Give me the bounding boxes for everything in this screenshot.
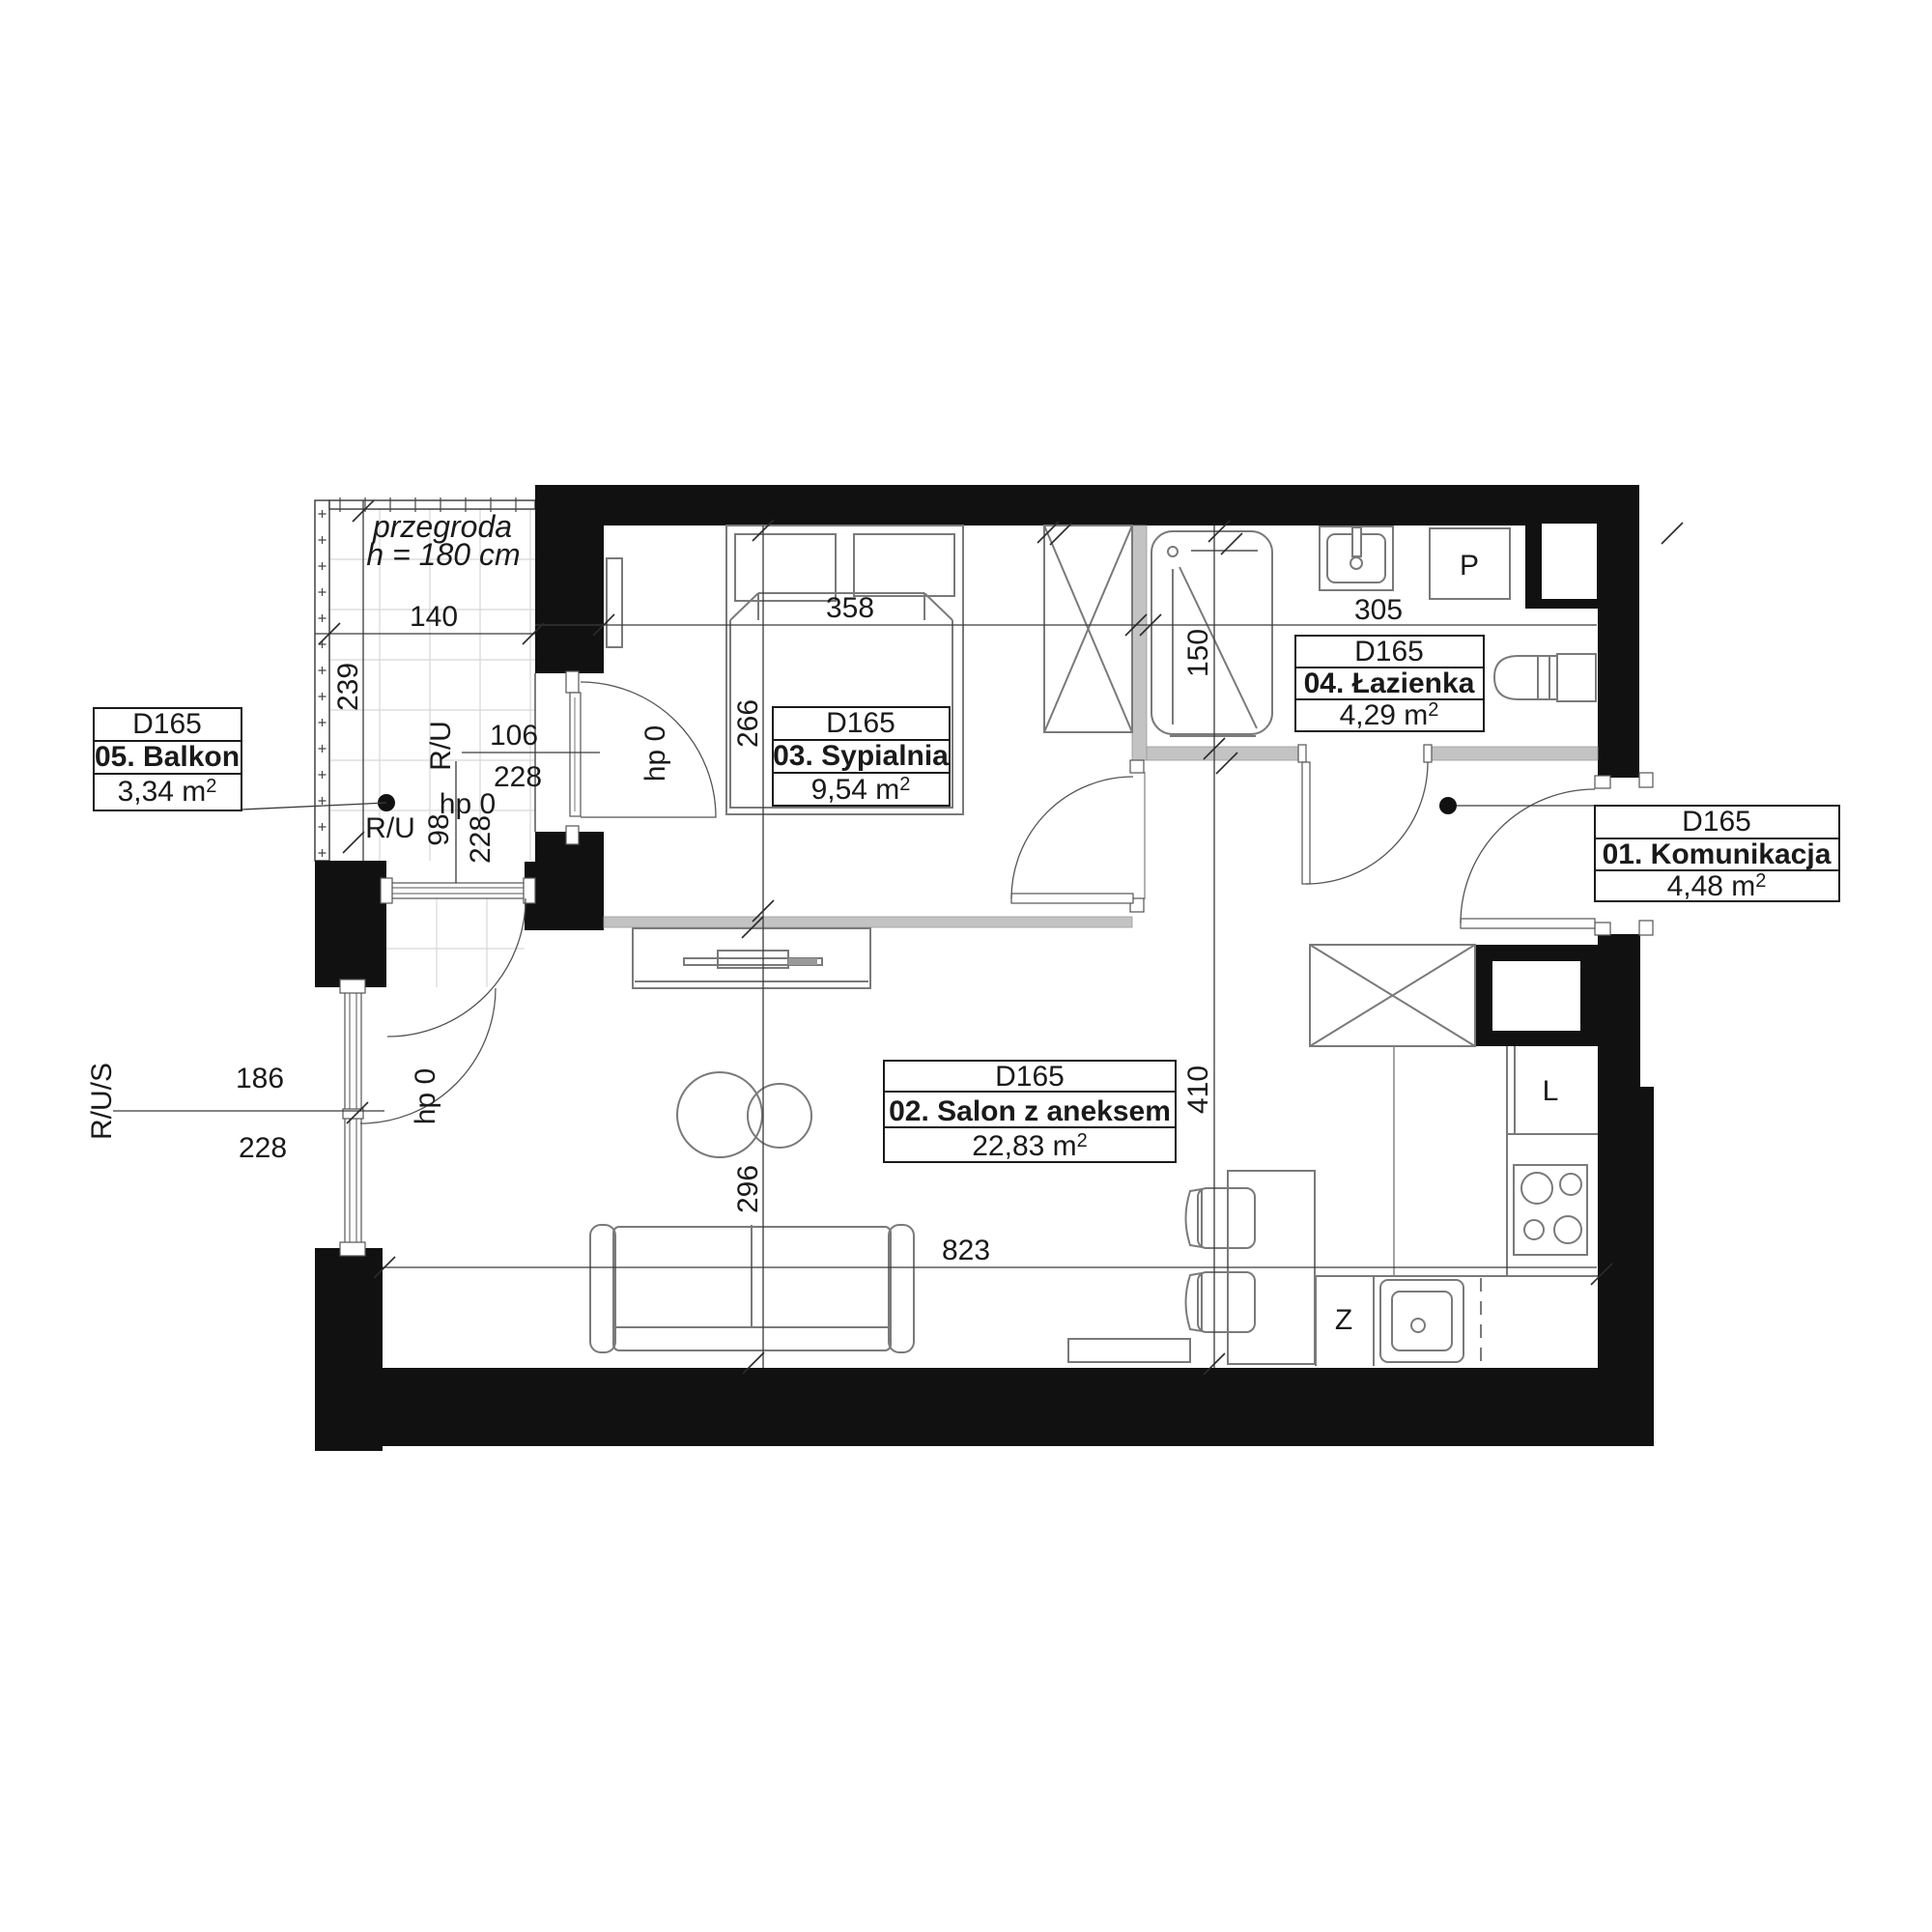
svg-text:228: 228 (494, 761, 542, 793)
svg-text:410: 410 (1182, 1065, 1214, 1114)
svg-text:03. Sypialnia: 03. Sypialnia (773, 740, 949, 772)
svg-text:04. Łazienka: 04. Łazienka (1304, 668, 1475, 699)
svg-text:305: 305 (1354, 594, 1403, 626)
svg-text:Z: Z (1335, 1304, 1352, 1336)
svg-text:hp 0: hp 0 (440, 788, 496, 820)
svg-text:D165: D165 (995, 1061, 1065, 1093)
svg-text:02. Salon z aneksem: 02. Salon z aneksem (889, 1095, 1171, 1127)
svg-text:140: 140 (410, 601, 458, 633)
svg-text:hp 0: hp 0 (639, 725, 671, 781)
svg-text:h = 180 cm: h = 180 cm (366, 537, 520, 572)
svg-text:296: 296 (732, 1165, 764, 1213)
svg-text:4,29 m2: 4,29 m2 (1340, 699, 1439, 731)
svg-text:D165: D165 (1682, 806, 1751, 838)
svg-text:358: 358 (826, 592, 874, 624)
svg-text:150: 150 (1182, 629, 1214, 677)
svg-text:228: 228 (239, 1132, 287, 1164)
svg-text:4,48 m2: 4,48 m2 (1667, 870, 1767, 902)
svg-text:9,54 m2: 9,54 m2 (811, 774, 911, 806)
svg-text:P: P (1460, 550, 1479, 582)
svg-text:05. Balkon: 05. Balkon (95, 741, 240, 773)
svg-text:D165: D165 (826, 707, 895, 739)
svg-text:823: 823 (942, 1235, 990, 1266)
svg-text:228: 228 (465, 815, 497, 864)
svg-text:106: 106 (490, 720, 538, 752)
svg-text:266: 266 (732, 699, 764, 748)
svg-text:R/U: R/U (365, 812, 415, 844)
svg-text:239: 239 (332, 663, 364, 711)
svg-text:3,34 m2: 3,34 m2 (118, 776, 217, 808)
svg-text:R/U: R/U (425, 721, 457, 771)
svg-text:L: L (1543, 1075, 1559, 1107)
svg-text:D165: D165 (1354, 636, 1424, 668)
svg-text:R/U/S: R/U/S (86, 1063, 118, 1140)
svg-text:D165: D165 (132, 708, 202, 740)
svg-text:186: 186 (236, 1063, 284, 1094)
svg-text:01. Komunikacja: 01. Komunikacja (1603, 838, 1832, 870)
svg-text:hp 0: hp 0 (410, 1068, 441, 1124)
svg-text:22,83 m2: 22,83 m2 (972, 1130, 1088, 1162)
